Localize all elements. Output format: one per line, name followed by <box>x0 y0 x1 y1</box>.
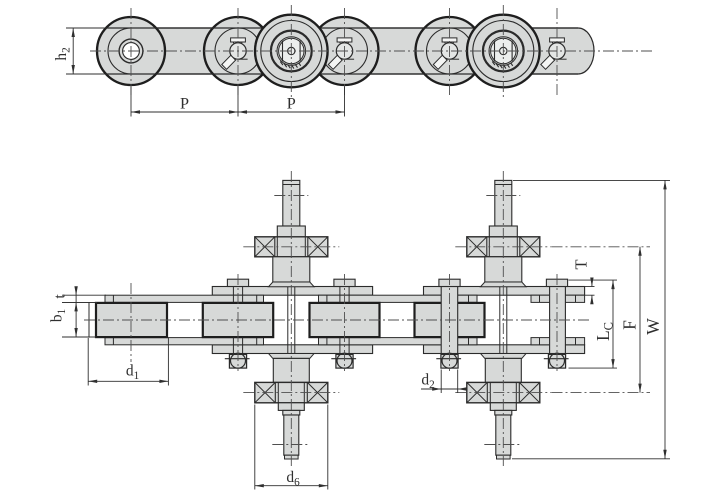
svg-text:T: T <box>572 259 591 269</box>
svg-text:P: P <box>180 95 189 113</box>
svg-text:F: F <box>620 320 640 330</box>
svg-text:P: P <box>287 95 296 113</box>
svg-text:t: t <box>52 294 69 299</box>
svg-text:W: W <box>643 318 663 335</box>
